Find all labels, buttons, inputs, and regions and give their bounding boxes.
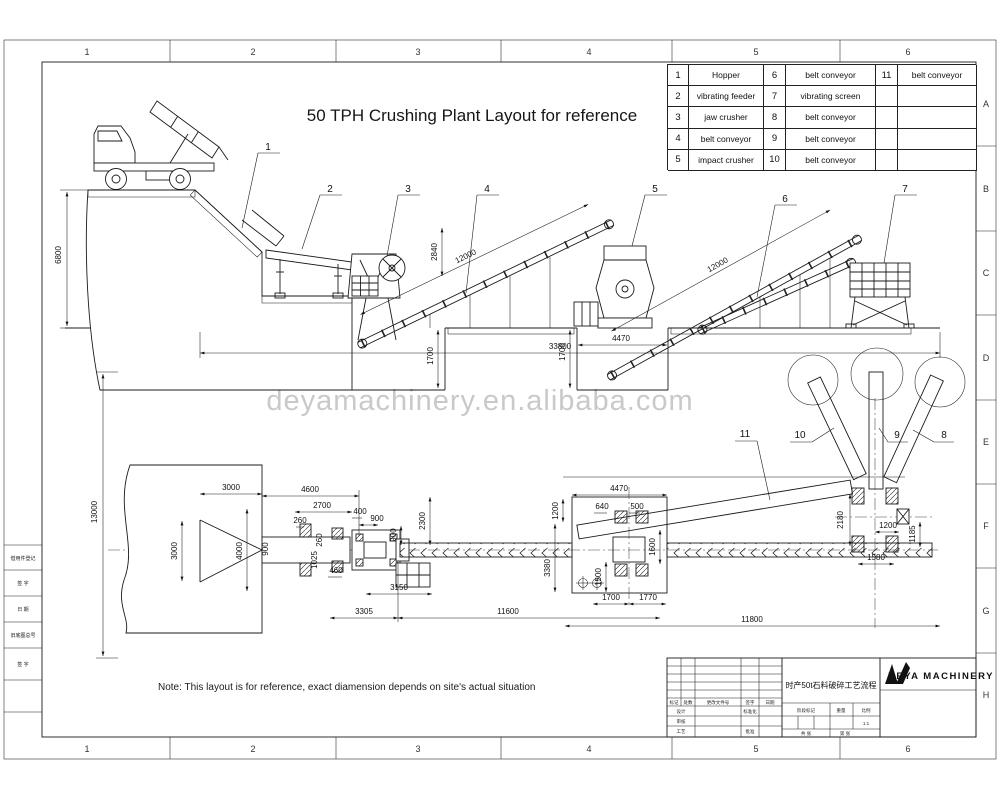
dim-conveyor4-length: 12000 xyxy=(454,247,478,265)
part-name xyxy=(898,86,977,107)
dim-13000: 13000 xyxy=(90,500,99,523)
stone-mound xyxy=(86,190,352,390)
part-name: belt conveyor xyxy=(786,107,876,128)
dim-1500: 1500 xyxy=(594,568,603,586)
dim-1580: 1580 xyxy=(867,553,885,562)
tb-field-process: 工艺 xyxy=(677,729,686,734)
dump-truck xyxy=(94,101,228,190)
part-name: belt conveyor xyxy=(898,65,977,86)
company-name: DEYA MACHINERY xyxy=(888,671,994,682)
dim-400: 400 xyxy=(353,507,367,516)
callout-8: 8 xyxy=(941,430,947,441)
grid-col-label: 5 xyxy=(753,744,758,754)
dim-1200b: 1200 xyxy=(879,521,897,530)
tb-field-approve: 批准 xyxy=(746,728,755,735)
tb-field-weight: 重量 xyxy=(837,707,846,714)
tb-field-sheets: 共 张 xyxy=(801,730,812,737)
tb-scale-value: 1:1 xyxy=(863,721,870,726)
dim-1200v: 1200 xyxy=(551,502,560,520)
dim-33800: 33800 xyxy=(549,342,572,351)
callout-11: 11 xyxy=(740,429,751,440)
note-text: Note: This layout is for reference, exac… xyxy=(158,682,536,693)
grid-col-label: 2 xyxy=(250,744,255,754)
grid-col-label: 2 xyxy=(250,47,255,57)
callout-6: 6 xyxy=(782,194,788,205)
dim-4470-plan: 4470 xyxy=(610,484,628,493)
margin-field: 签 字 xyxy=(17,661,28,668)
margin-field: 旧底图总号 xyxy=(10,632,35,639)
callout-3: 3 xyxy=(405,184,411,195)
callout-9: 9 xyxy=(894,430,900,441)
parts-table: 1 Hopper 6 belt conveyor 11 belt conveyo… xyxy=(667,64,976,170)
part-no: 6 xyxy=(764,65,786,86)
part-no xyxy=(876,150,898,171)
dim-2180: 2180 xyxy=(836,511,845,529)
part-name: belt conveyor xyxy=(786,129,876,150)
part-no: 4 xyxy=(668,129,689,150)
part-no: 10 xyxy=(764,150,786,171)
dim-2300: 2300 xyxy=(418,512,427,530)
grid-row-label: B xyxy=(983,184,989,194)
callout-5: 5 xyxy=(652,184,658,195)
left-margin-table: 借用件登记 签 字 日 期 旧底图总号 签 字 xyxy=(4,545,42,712)
callout-10: 10 xyxy=(794,430,806,441)
part-no xyxy=(876,107,898,128)
grid-row-label: A xyxy=(983,99,989,109)
dim-11600: 11600 xyxy=(497,607,519,616)
tb-field-standardize: 标准化 xyxy=(743,708,757,715)
dim-6800: 6800 xyxy=(54,246,63,264)
dim-260b: 260 xyxy=(315,533,324,547)
dim-1025: 1025 xyxy=(310,551,319,569)
dim-4600: 4600 xyxy=(301,485,319,494)
dim-pit1-1700: 1700 xyxy=(426,347,435,365)
part-no: 8 xyxy=(764,107,786,128)
tb-field-changedoc: 更改文件号 xyxy=(707,699,730,706)
part-name xyxy=(898,107,977,128)
dim-900a: 900 xyxy=(261,542,270,556)
tb-field-check: 审核 xyxy=(677,718,686,725)
dim-900c: 900 xyxy=(389,528,398,542)
dim-460: 460 xyxy=(329,566,343,575)
dim-4470: 4470 xyxy=(612,334,630,343)
tb-field-stagemark: 阶段标记 xyxy=(797,707,815,714)
tb-field-design: 设计 xyxy=(677,708,686,715)
part-name: belt conveyor xyxy=(786,65,876,86)
grid-row-label: D xyxy=(983,353,990,363)
part-name: belt conveyor xyxy=(786,150,876,171)
part-name: belt conveyor xyxy=(689,129,764,150)
title-block: 标记 处数 更改文件号 签字 日期 设计 标准化 审核 工艺 批准 时产50t石… xyxy=(667,658,994,737)
part-name: vibrating screen xyxy=(786,86,876,107)
margin-field: 借用件登记 xyxy=(10,555,35,562)
part-no: 11 xyxy=(876,65,898,86)
callout-1: 1 xyxy=(265,142,271,153)
grid-row-label: G xyxy=(982,606,989,616)
grid-row-label: C xyxy=(983,268,990,278)
plan-conveyor-8 xyxy=(884,375,944,483)
conveyor-under-screen xyxy=(696,257,857,336)
conveyor-4-supports xyxy=(430,257,550,328)
part-no: 9 xyxy=(764,129,786,150)
margin-field: 签 字 xyxy=(17,580,28,587)
conveyor-6-supports xyxy=(760,258,830,328)
callout-2: 2 xyxy=(327,184,333,195)
dim-900b: 900 xyxy=(370,514,384,523)
tb-field-sign: 签字 xyxy=(746,699,755,705)
grid-col-label: 1 xyxy=(84,47,89,57)
grid-col-label: 4 xyxy=(586,744,591,754)
part-no: 3 xyxy=(668,107,689,128)
impact-crusher xyxy=(574,246,654,328)
plan-conveyor-10 xyxy=(808,377,867,480)
callout-4: 4 xyxy=(484,184,490,195)
tb-field-mark: 标记 xyxy=(670,699,679,706)
grid-row-label: E xyxy=(983,437,989,447)
dim-1770: 1770 xyxy=(639,593,657,602)
margin-field: 日 期 xyxy=(17,607,28,613)
dim-4000: 4000 xyxy=(235,542,244,560)
vibrating-feeder xyxy=(266,250,352,298)
dim-3305: 3305 xyxy=(355,607,373,616)
dim-3000v: 3000 xyxy=(170,542,179,560)
grid-row-label: H xyxy=(983,690,990,700)
part-no xyxy=(876,86,898,107)
callout-7: 7 xyxy=(902,184,908,195)
part-name: vibrating feeder xyxy=(689,86,764,107)
grid-col-label: 4 xyxy=(586,47,591,57)
grid-col-label: 6 xyxy=(905,744,910,754)
dim-1185: 1185 xyxy=(908,525,917,543)
part-no xyxy=(876,129,898,150)
part-name xyxy=(898,150,977,171)
grid-row-label: F xyxy=(983,521,989,531)
dim-3000h: 3000 xyxy=(222,483,240,492)
drawing-sheet: 1 2 3 4 5 6 1 2 3 4 5 6 A B C D E F G H xyxy=(0,0,1000,800)
tb-field-scale: 比例 xyxy=(862,707,871,714)
dim-3150: 3150 xyxy=(390,583,408,592)
tb-field-count: 处数 xyxy=(684,699,693,706)
part-name: Hopper xyxy=(689,65,764,86)
dim-1700-plan: 1700 xyxy=(602,593,620,602)
plan-callouts: 11 10 9 8 xyxy=(735,428,954,500)
part-no: 2 xyxy=(668,86,689,107)
part-no: 1 xyxy=(668,65,689,86)
dim-640: 640 xyxy=(595,502,609,511)
dim-11800: 11800 xyxy=(741,615,763,624)
tb-drawing-title-cn: 时产50t石料破碎工艺流程 xyxy=(785,680,876,690)
dim-500: 500 xyxy=(630,502,644,511)
grid-col-label: 5 xyxy=(753,47,758,57)
grid-col-label: 3 xyxy=(415,744,420,754)
part-no: 7 xyxy=(764,86,786,107)
dim-1600: 1600 xyxy=(648,538,657,556)
dim-260a: 260 xyxy=(293,516,307,525)
dim-2840: 2840 xyxy=(430,243,439,261)
drawing-title: 50 TPH Crushing Plant Layout for referen… xyxy=(307,106,637,125)
tb-field-sheetno: 第 张 xyxy=(840,730,851,737)
part-name: impact crusher xyxy=(689,150,764,171)
grid-col-label: 1 xyxy=(84,744,89,754)
part-name: jaw crusher xyxy=(689,107,764,128)
dim-conveyor6-length: 12000 xyxy=(706,255,730,274)
dim-3380: 3380 xyxy=(543,559,552,577)
dim-2700: 2700 xyxy=(313,501,331,510)
grid-col-label: 6 xyxy=(905,47,910,57)
part-name xyxy=(898,129,977,150)
grid-col-label: 3 xyxy=(415,47,420,57)
vibrating-screen xyxy=(846,263,914,328)
part-no: 5 xyxy=(668,150,689,171)
tb-field-date: 日期 xyxy=(766,700,775,706)
